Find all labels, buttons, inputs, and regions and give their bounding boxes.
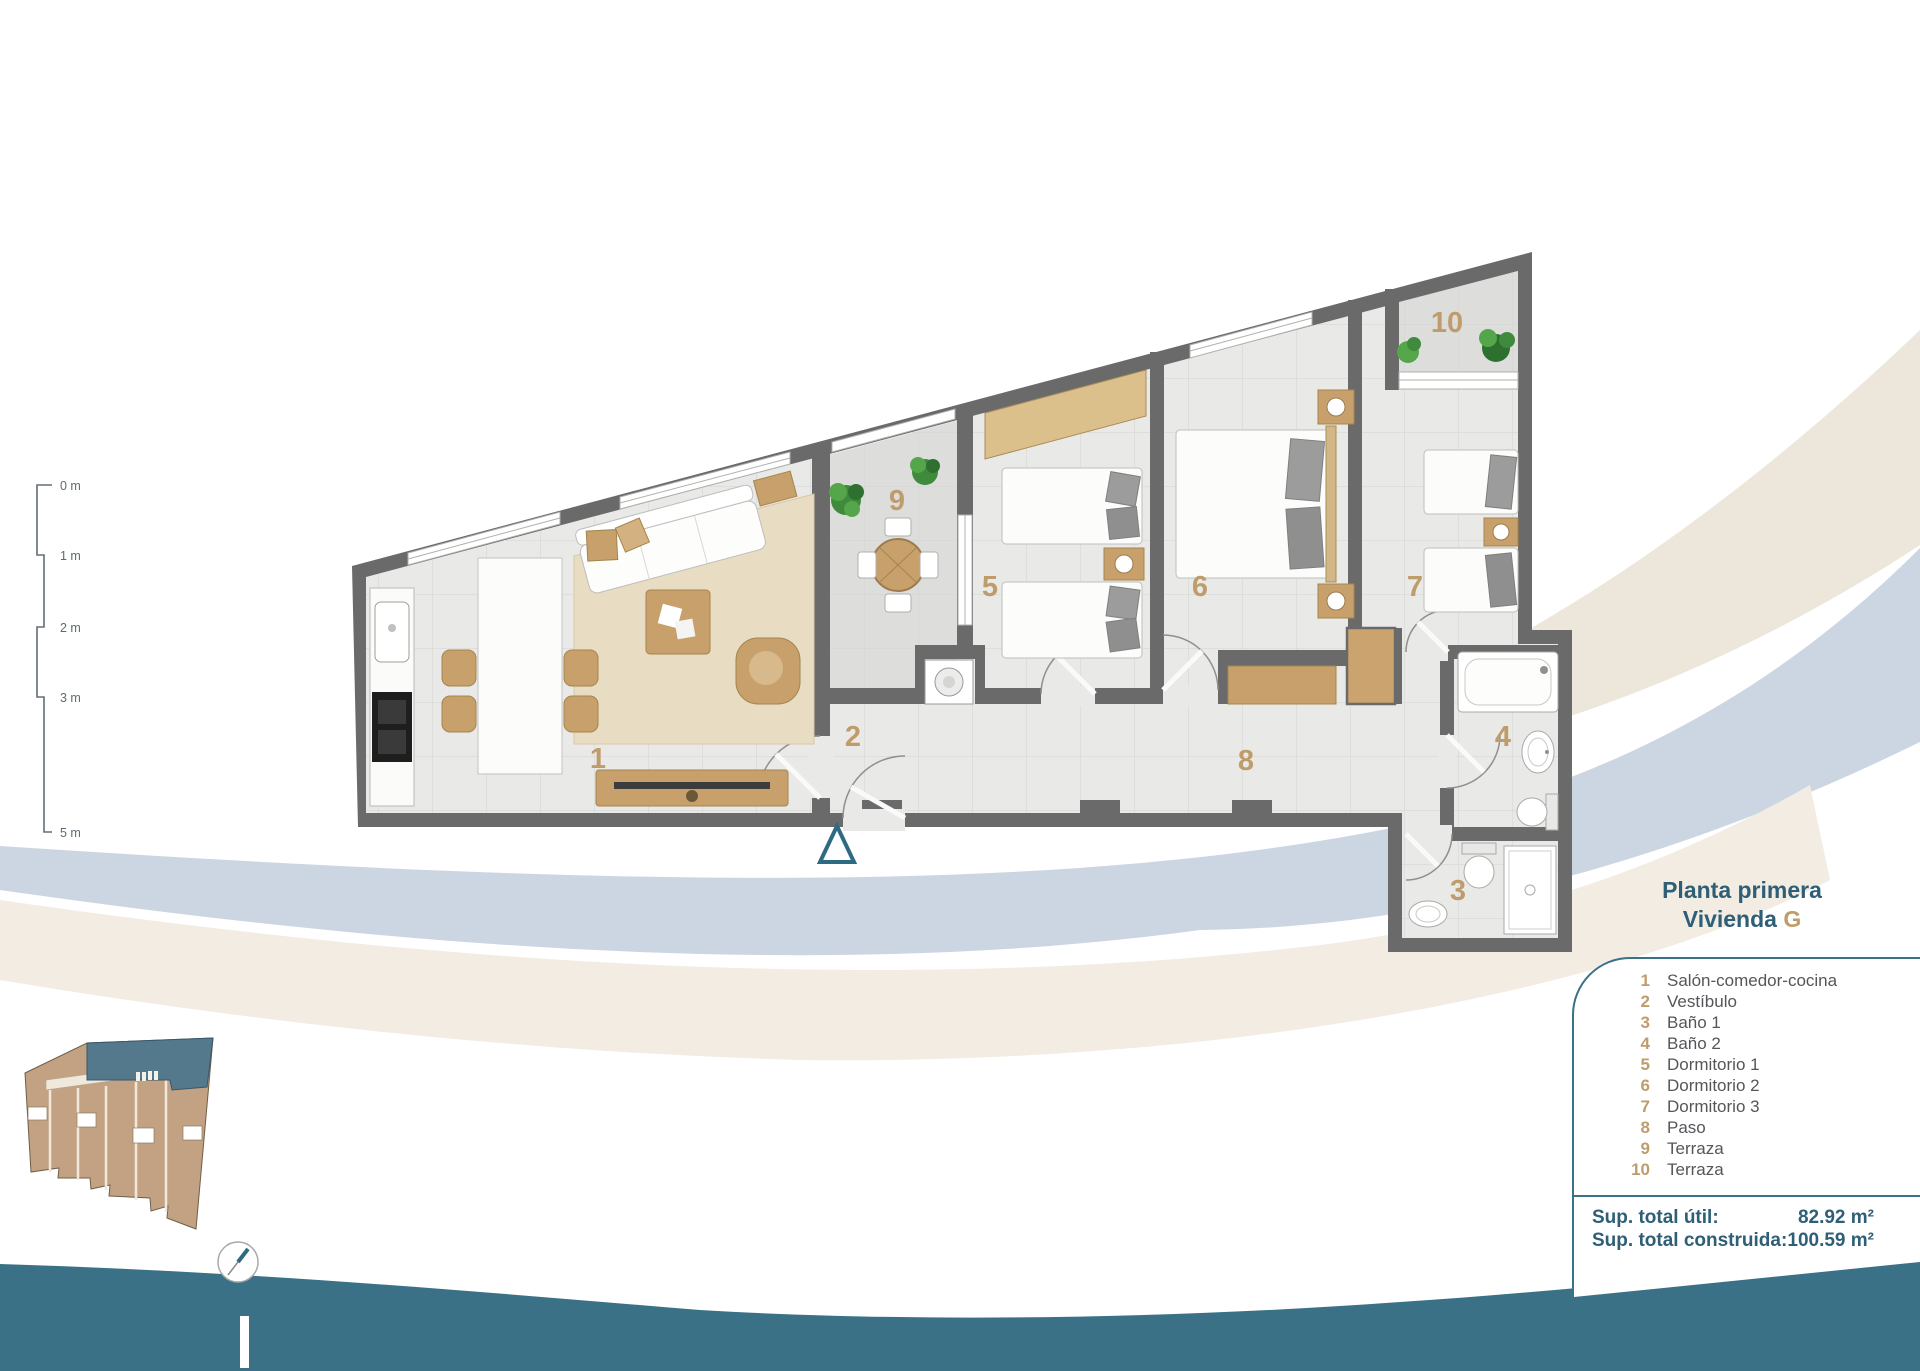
legend-num: 3 (1614, 1012, 1650, 1033)
legend-label: Salón-comedor-cocina (1667, 970, 1837, 991)
legend-num: 7 (1614, 1096, 1650, 1117)
legend-num: 1 (1614, 970, 1650, 991)
bedroom-1 (985, 370, 1146, 658)
legend-num: 5 (1614, 1054, 1650, 1075)
tv (614, 782, 770, 789)
panel-divider (1574, 1195, 1920, 1197)
room-label-2: 2 (845, 721, 861, 753)
legend-label: Vestíbulo (1667, 991, 1737, 1012)
site-minimap (25, 1038, 213, 1229)
plan-title: Planta primera Vivienda G (1630, 876, 1854, 934)
list-item: 1Salón-comedor-cocina (1614, 970, 1837, 991)
legend-label: Terraza (1667, 1138, 1724, 1159)
legend-num: 4 (1614, 1033, 1650, 1054)
legend-label: Dormitorio 1 (1667, 1054, 1760, 1075)
brochure-page: 0 m 1 m 2 m 3 m 5 m (0, 0, 1920, 1371)
scale-label-1m: 1 m (60, 549, 81, 563)
legend-label: Baño 2 (1667, 1033, 1721, 1054)
sink (1409, 901, 1447, 927)
legend-label: Baño 1 (1667, 1012, 1721, 1033)
bottom-band-tick (240, 1316, 249, 1368)
headboard (1326, 426, 1336, 582)
room-label-6: 6 (1192, 571, 1208, 603)
list-item: 2Vestíbulo (1614, 991, 1837, 1012)
list-item: 9Terraza (1614, 1138, 1837, 1159)
list-item: 6Dormitorio 2 (1614, 1075, 1837, 1096)
room-label-7: 7 (1407, 571, 1423, 603)
legend-num: 2 (1614, 991, 1650, 1012)
room-label-3: 3 (1450, 875, 1466, 907)
entrance-marker (820, 826, 854, 862)
surface-totals: Sup. total útil:82.92 m² Sup. total cons… (1592, 1206, 1874, 1252)
plan-title-dwelling: Vivienda (1683, 906, 1784, 932)
shower (1504, 846, 1556, 934)
list-item: 10Terraza (1614, 1159, 1837, 1180)
floor-plan: 1 2 3 4 5 6 7 8 9 10 (352, 252, 1572, 952)
room-legend: 1Salón-comedor-cocina 2Vestíbulo 3Baño 1… (1614, 970, 1837, 1180)
legend-label: Dormitorio 2 (1667, 1075, 1760, 1096)
room-label-5: 5 (982, 571, 998, 603)
plan-title-unit-letter: G (1783, 906, 1801, 932)
dining-island (478, 558, 562, 774)
room-label-8: 8 (1238, 745, 1254, 777)
room-label-4: 4 (1495, 721, 1511, 753)
room-label-1: 1 (590, 743, 606, 775)
total-util-value: 82.92 m² (1798, 1206, 1874, 1229)
total-built-label: Sup. total construida: (1592, 1229, 1787, 1252)
total-util-label: Sup. total útil: (1592, 1206, 1719, 1229)
scale-bar-line (37, 485, 52, 832)
list-item: 8Paso (1614, 1117, 1837, 1138)
plan-title-line1: Planta primera (1630, 876, 1854, 905)
scale-label-5m: 5 m (60, 826, 81, 840)
scale-label-3m: 3 m (60, 691, 81, 705)
scale-bar: 0 m 1 m 2 m 3 m 5 m (37, 479, 81, 840)
scale-label-2m: 2 m (60, 621, 81, 635)
list-item: 3Baño 1 (1614, 1012, 1837, 1033)
plan-title-line2: Vivienda G (1630, 905, 1854, 934)
room-label-10: 10 (1431, 307, 1463, 339)
bench (1228, 666, 1336, 704)
legend-num: 8 (1614, 1117, 1650, 1138)
total-util-row: Sup. total útil:82.92 m² (1592, 1206, 1874, 1229)
toilet (1462, 843, 1496, 888)
compass-icon (218, 1242, 258, 1282)
closet (1347, 628, 1395, 704)
legend-label: Dormitorio 3 (1667, 1096, 1760, 1117)
legend-num: 9 (1614, 1138, 1650, 1159)
list-item: 5Dormitorio 1 (1614, 1054, 1837, 1075)
legend-label: Paso (1667, 1117, 1706, 1138)
vestibule (925, 660, 973, 704)
room-label-9: 9 (889, 485, 905, 517)
sink (1522, 731, 1554, 773)
scale-label-0m: 0 m (60, 479, 81, 493)
list-item: 7Dormitorio 3 (1614, 1096, 1837, 1117)
total-built-row: Sup. total construida:100.59 m² (1592, 1229, 1874, 1252)
legend-num: 6 (1614, 1075, 1650, 1096)
total-built-value: 100.59 m² (1787, 1229, 1874, 1252)
legend-label: Terraza (1667, 1159, 1724, 1180)
list-item: 4Baño 2 (1614, 1033, 1837, 1054)
legend-num: 10 (1614, 1159, 1650, 1180)
